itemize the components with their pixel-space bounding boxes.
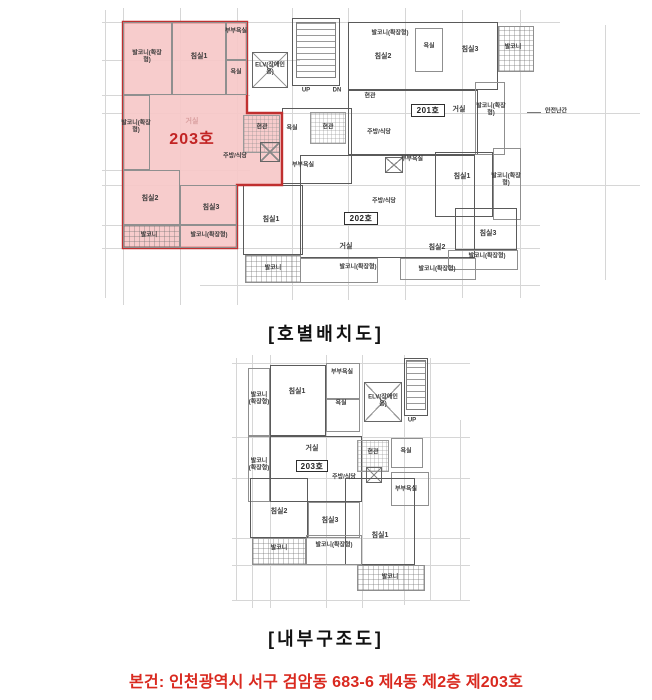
internal-structure-plan-gridline	[232, 600, 470, 601]
internal-structure-plan-wall	[270, 365, 326, 436]
internal-structure-plan-label: 발코니(확장형)	[315, 543, 352, 550]
internal-structure-plan-label: ELV(장애인용)	[367, 394, 399, 407]
internal-structure-plan-label: 발코니	[271, 546, 288, 553]
subject-property-text: 본건: 인천광역시 서구 검암동 683-6 제4동 제2층 제203호	[129, 674, 523, 691]
internal-structure-plan-label: 발코니(확장형)	[247, 392, 271, 405]
internal-structure-plan-label: 거실	[306, 445, 319, 453]
internal-structure-plan-stairs	[406, 360, 426, 410]
internal-structure-plan-label: 침실1	[289, 388, 306, 396]
internal-structure-plan-label: 침실2	[271, 508, 288, 516]
internal-structure-plan-label: 현관	[367, 450, 378, 457]
internal-structure-plan-gridline	[430, 358, 431, 600]
internal-structure-plan-label: 욕실	[400, 449, 411, 456]
internal-structure-plan-gridline	[236, 358, 237, 600]
internal-structure-plan-label: 주방/식당	[332, 475, 356, 482]
internal-structure-plan-room	[306, 535, 362, 565]
internal-structure-plan-label: 부부욕실	[331, 370, 353, 377]
internal-structure-plan-label: 발코니(확장형)	[247, 458, 271, 471]
internal-structure-plan-badge: 203호	[296, 460, 328, 472]
internal-structure-plan-label: 침실1	[372, 532, 389, 540]
layout-plan-caption: [호별배치도]	[0, 320, 652, 346]
internal-structure-plan-gridline	[460, 420, 461, 600]
structure-plan-caption: [내부구조도]	[0, 625, 652, 651]
internal-structure-plan-label: 욕실	[335, 401, 346, 408]
internal-structure-plan-label: 침실3	[322, 517, 339, 525]
internal-structure-plan-label: 부부욕실	[395, 487, 417, 494]
internal-structure-plan-gridline	[232, 565, 470, 566]
internal-structure-plan-label: 발코니	[382, 575, 399, 582]
internal-structure-plan: 203호발코니(확장형)침실1부부욕실욕실ELV(장애인용)UP발코니(확장형)…	[0, 0, 652, 700]
internal-structure-plan-label: UP	[408, 418, 416, 425]
subject-property-footer: 본건: 인천광역시 서구 검암동 683-6 제4동 제2층 제203호	[0, 668, 652, 692]
floor-plan-page: 202호201호발코니(확장형)침실1부부욕실욕실발코니(확장형)거실203호현…	[0, 0, 652, 700]
internal-structure-plan-room	[326, 363, 360, 399]
